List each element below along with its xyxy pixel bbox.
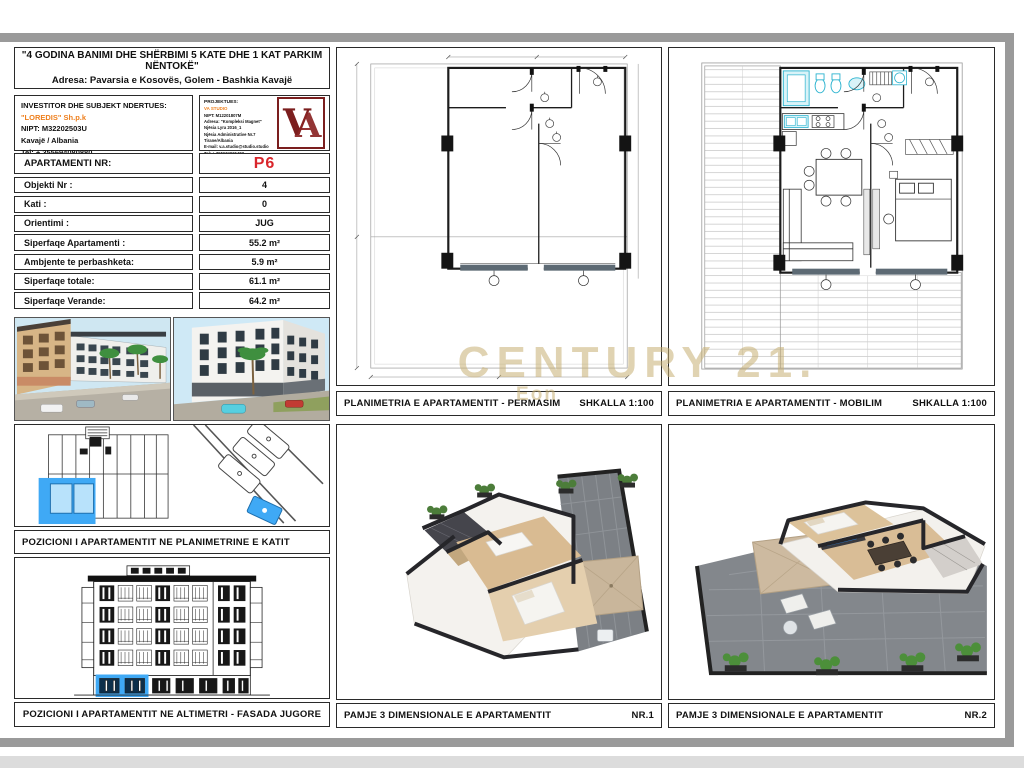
designer-company: VA STUDIO <box>204 106 274 113</box>
caption-position-elevation: POZICIONI I APARTAMENTIT NE ALTIMETRI - … <box>14 702 330 727</box>
designer-line: E-mail: v.a.studio@studio.studio <box>204 144 274 150</box>
project-address: Adresa: Pavarsia e Kosovës, Golem - Bash… <box>15 75 329 86</box>
row-value: 55.2 m² <box>199 234 330 251</box>
row-label: Objekti Nr : <box>14 177 193 194</box>
apartment-info-table: APARTAMENTI NR: P6 Objekti Nr : 4 Kati :… <box>14 153 330 309</box>
building-render-photo-2 <box>173 317 330 421</box>
view3d-1-drawing <box>337 425 661 699</box>
investor-heading: INVESTITOR DHE SUBJEKT NDERTUES: <box>21 100 186 112</box>
caption-view3d-1: PAMJE 3 DIMENSIONALE E APARTAMENTIT NR.1 <box>336 703 662 728</box>
caption-text: PAMJE 3 DIMENSIONALE E APARTAMENTIT <box>669 710 965 721</box>
table-row: Ambjente te perbashketa: 5.9 m² <box>14 254 330 271</box>
caption-text: PAMJE 3 DIMENSIONALE E APARTAMENTIT <box>337 710 632 721</box>
building-renders <box>14 317 330 421</box>
table-row: Siperfaqe Apartamenti : 55.2 m² <box>14 234 330 251</box>
designer-heading: PROJEKTUES: <box>204 99 274 106</box>
svg-text:A: A <box>294 106 322 146</box>
elevation-drawing <box>15 558 329 698</box>
row-value: 61.1 m² <box>199 273 330 290</box>
caption-position-plan: POZICIONI I APARTAMENTIT NE PLANIMETRINE… <box>14 530 330 554</box>
caption-view3d-2: PAMJE 3 DIMENSIONALE E APARTAMENTIT NR.2 <box>668 703 995 728</box>
caption-plan-mobilim: PLANIMETRIA E APARTAMENTIT - MOBILIM SHK… <box>668 391 995 416</box>
row-value: 64.2 m² <box>199 292 330 309</box>
view3d-2-drawing <box>669 425 994 699</box>
permasim-plan-drawing <box>337 48 661 385</box>
investor-city: Kavajë / Albania <box>21 135 186 147</box>
table-row: Siperfaqe Verande: 64.2 m² <box>14 292 330 309</box>
position-plan-panel <box>14 424 330 527</box>
row-label: APARTAMENTI NR: <box>14 153 193 174</box>
investor-company: "LOREDIS" Sh.p.k <box>21 112 186 124</box>
view-number: NR.2 <box>965 710 994 721</box>
view3d-1-panel <box>336 424 662 700</box>
row-label: Siperfaqe Apartamenti : <box>14 234 193 251</box>
row-label: Kati : <box>14 196 193 213</box>
designer-block: PROJEKTUES: VA STUDIO NIPT: M12201807M A… <box>199 95 330 151</box>
row-value: 4 <box>199 177 330 194</box>
view3d-2-panel <box>668 424 995 700</box>
caption-text: PLANIMETRIA E APARTAMENTIT - MOBILIM <box>669 398 912 409</box>
row-label: Ambjente te perbashketa: <box>14 254 193 271</box>
caption-text: POZICIONI I APARTAMENTIT NE PLANIMETRINE… <box>15 537 329 548</box>
scale-label: SHKALLA 1:100 <box>579 398 661 409</box>
investor-nipt: NIPT: M32202503U <box>21 123 186 135</box>
scale-label: SHKALLA 1:100 <box>912 398 994 409</box>
va-monogram-logo: V A <box>277 97 325 149</box>
table-row: Kati : 0 <box>14 196 330 213</box>
elevation-panel <box>14 557 330 699</box>
apartment-number-value: P6 <box>199 153 330 174</box>
caption-plan-permasim: PLANIMETRIA E APARTAMENTIT - PERMASIM SH… <box>336 391 662 416</box>
scan-edge-strip <box>0 756 1024 768</box>
row-label: Siperfaqe Verande: <box>14 292 193 309</box>
investor-block: INVESTITOR DHE SUBJEKT NDERTUES: "LOREDI… <box>14 95 193 151</box>
mobilim-plan-drawing <box>669 48 994 385</box>
view-number: NR.1 <box>632 710 661 721</box>
table-header-row: APARTAMENTI NR: P6 <box>14 153 330 174</box>
plan-permasim-panel <box>336 47 662 386</box>
table-row: Orientimi : JUG <box>14 215 330 232</box>
row-value: 0 <box>199 196 330 213</box>
plan-mobilim-panel <box>668 47 995 386</box>
table-row: Siperfaqe totale: 61.1 m² <box>14 273 330 290</box>
title-block: "4 GODINA BANIMI DHE SHËRBIMI 5 KATE DHE… <box>14 47 330 89</box>
row-value: 5.9 m² <box>199 254 330 271</box>
project-title: "4 GODINA BANIMI DHE SHËRBIMI 5 KATE DHE… <box>15 50 329 72</box>
row-label: Orientimi : <box>14 215 193 232</box>
plan-sheet: "4 GODINA BANIMI DHE SHËRBIMI 5 KATE DHE… <box>0 0 1024 768</box>
caption-text: PLANIMETRIA E APARTAMENTIT - PERMASIM <box>337 398 579 409</box>
table-row: Objekti Nr : 4 <box>14 177 330 194</box>
row-label: Siperfaqe totale: <box>14 273 193 290</box>
row-value: JUG <box>199 215 330 232</box>
floorplate-drawing <box>15 425 329 526</box>
caption-text: POZICIONI I APARTAMENTIT NE ALTIMETRI - … <box>23 709 321 720</box>
building-render-photo-1 <box>14 317 171 421</box>
